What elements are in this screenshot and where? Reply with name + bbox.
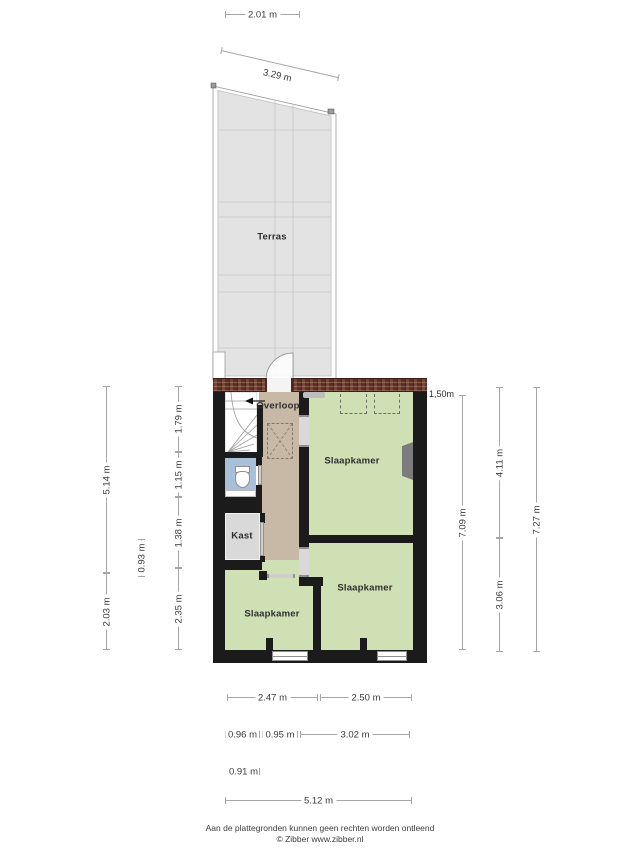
dim-bottom-room1: 2.47 m xyxy=(227,692,318,703)
toilet-shelf xyxy=(225,490,256,497)
dim-right-total: 7.27 m xyxy=(531,387,542,652)
closet-label: Kast xyxy=(231,531,252,542)
exterior-wall-left xyxy=(213,392,225,650)
dim-top-slope: 3.29 m xyxy=(220,45,340,83)
footer-line2: © Zibber www.zibber.nl xyxy=(0,834,640,845)
dim-left-seg4: 2.35 m xyxy=(173,568,184,650)
bedroom-bottom-right-floor xyxy=(309,543,413,650)
dormer-window-right xyxy=(402,442,413,480)
dim-left-seg3: 1.38 m xyxy=(173,497,184,568)
wall-segment xyxy=(257,405,263,457)
wall-segment xyxy=(256,485,262,497)
roof-line-marking-1 xyxy=(340,394,367,414)
door-hall-to-left-bedroom xyxy=(267,574,295,578)
attic-hatch-marking xyxy=(267,423,293,459)
dim-left-lower: 2.03 m xyxy=(101,573,112,650)
height-marker-label: 1,50m xyxy=(429,389,454,399)
exterior-wall-top-brick xyxy=(213,378,427,392)
dim-right-inner: 7.09 m xyxy=(457,395,468,650)
terrace-label: Terras xyxy=(257,232,287,243)
terrace-post-right xyxy=(328,109,334,114)
door-hall-to-right-bedroom xyxy=(299,547,309,577)
wall-segment xyxy=(299,447,309,547)
floorplan-page: Terras xyxy=(0,0,640,853)
dim-bottom-room2: 2.50 m xyxy=(320,692,412,703)
door-closet xyxy=(260,522,264,556)
dim-bottom-seg2: 0.95 m xyxy=(262,729,298,740)
window-bottom-right xyxy=(377,651,407,661)
wall-segment xyxy=(259,571,267,580)
dim-bottom-total: 5.12 m xyxy=(225,795,412,806)
door-hall-to-top-bedroom xyxy=(299,415,309,447)
terrace-door-opening xyxy=(265,378,293,392)
footer-line1: Aan de plattegronden kunnen geen rechten… xyxy=(0,823,640,834)
wall-segment xyxy=(225,560,262,570)
wall-segment xyxy=(309,535,413,543)
wall-segment xyxy=(225,497,262,513)
exterior-wall-right xyxy=(413,392,427,650)
landing-label: Overloop xyxy=(256,401,299,412)
radiator xyxy=(303,392,325,398)
roof-line-marking-2 xyxy=(374,394,400,414)
dim-bottom-seg4: 0.91 m xyxy=(227,766,260,777)
dim-left-seg1: 1.79 m xyxy=(173,386,184,452)
terrace-step xyxy=(213,352,225,380)
bedroom-bottom-right-label: Slaapkamer xyxy=(337,583,392,594)
dim-bottom-seg3: 3.02 m xyxy=(300,729,410,740)
dim-right-seg1: 4.11 m xyxy=(494,387,505,538)
bedroom-bottom-left-label: Slaapkamer xyxy=(244,609,299,620)
terrace-post-left xyxy=(211,83,216,88)
dim-bottom-seg1: 0.96 m xyxy=(225,729,260,740)
wall-segment xyxy=(313,586,321,650)
dim-left-seg2: 1.15 m xyxy=(173,452,184,497)
dim-left-upper: 5.14 m xyxy=(101,386,112,573)
footer-disclaimer: Aan de plattegronden kunnen geen rechten… xyxy=(0,823,640,845)
dim-right-seg2: 3.06 m xyxy=(494,538,505,652)
wall-segment xyxy=(266,638,273,650)
dim-left-mid: 0.93 m xyxy=(136,539,147,577)
wall-segment xyxy=(299,577,323,586)
door-toilet xyxy=(258,465,262,485)
dim-top-width: 2.01 m xyxy=(225,9,300,20)
window-bottom-left xyxy=(272,651,308,661)
hallway-floor xyxy=(259,392,299,580)
bedroom-top-label: Slaapkamer xyxy=(324,456,379,467)
wall-segment xyxy=(360,638,367,650)
